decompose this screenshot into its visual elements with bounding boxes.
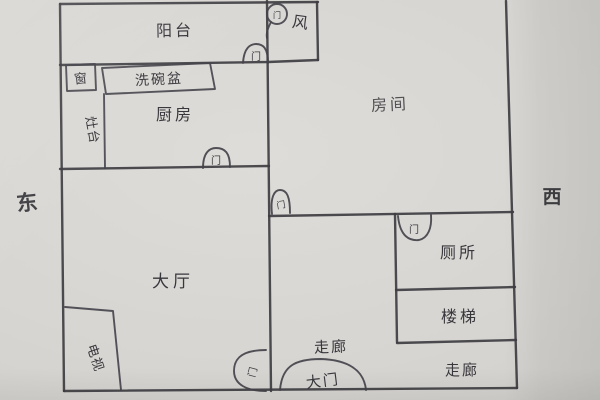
wall-toilet-left <box>395 214 397 342</box>
compass-west-label: 西 <box>542 186 561 208</box>
nook-door-label: 门 <box>273 10 281 20</box>
wall-top-nook-right <box>317 2 318 60</box>
wall-bottom <box>64 388 517 391</box>
hall-door-label: 门 <box>245 366 260 379</box>
bedroom-label: 房间 <box>371 94 410 115</box>
wall-stairs-bottom <box>397 340 516 343</box>
wall-toilet-bottom <box>396 287 515 290</box>
corridor-bottom-label: 走廊 <box>445 361 479 379</box>
floor-plan-sketch: 窗 灶台 电视 门 风 门 门 门 门 门 大门 阳台 洗碗盆 厨 <box>0 0 600 400</box>
tv-cabinet-label: 电视 <box>83 343 106 374</box>
stairs-label: 楼梯 <box>441 307 479 326</box>
kitchen-door-label: 门 <box>211 154 221 167</box>
wind-mark-label: 风 <box>291 12 311 33</box>
wall-kitchen-bottom <box>60 166 269 169</box>
stove-counter-label: 灶台 <box>82 115 102 145</box>
kitchen-label: 厨房 <box>156 105 194 124</box>
sink-counter-label: 洗碗盆 <box>135 71 184 89</box>
balcony-door-label: 门 <box>251 50 261 63</box>
floor-plan-photo: 窗 灶台 电视 门 风 门 门 门 门 门 大门 阳台 洗碗盆 厨 <box>0 0 600 400</box>
compass-east-label: 东 <box>15 190 38 216</box>
wall-bedroom-bottom <box>269 212 513 216</box>
wall-right <box>506 1 517 388</box>
corner-fixture-label: 窗 <box>73 70 89 87</box>
hall-label: 大厅 <box>152 272 194 292</box>
balcony-label: 阳台 <box>156 21 194 41</box>
bedroom-door-label: 门 <box>276 198 287 211</box>
room-labels: 阳台 洗碗盆 厨房 房间 大厅 厕所 楼梯 走廊 走廊 <box>135 21 479 379</box>
toilet-label: 厕所 <box>440 243 478 262</box>
stove-counter-line <box>104 94 105 168</box>
wall-left <box>60 4 64 391</box>
corridor-middle-label: 走廊 <box>314 337 349 356</box>
toilet-door-label: 门 <box>409 223 419 236</box>
